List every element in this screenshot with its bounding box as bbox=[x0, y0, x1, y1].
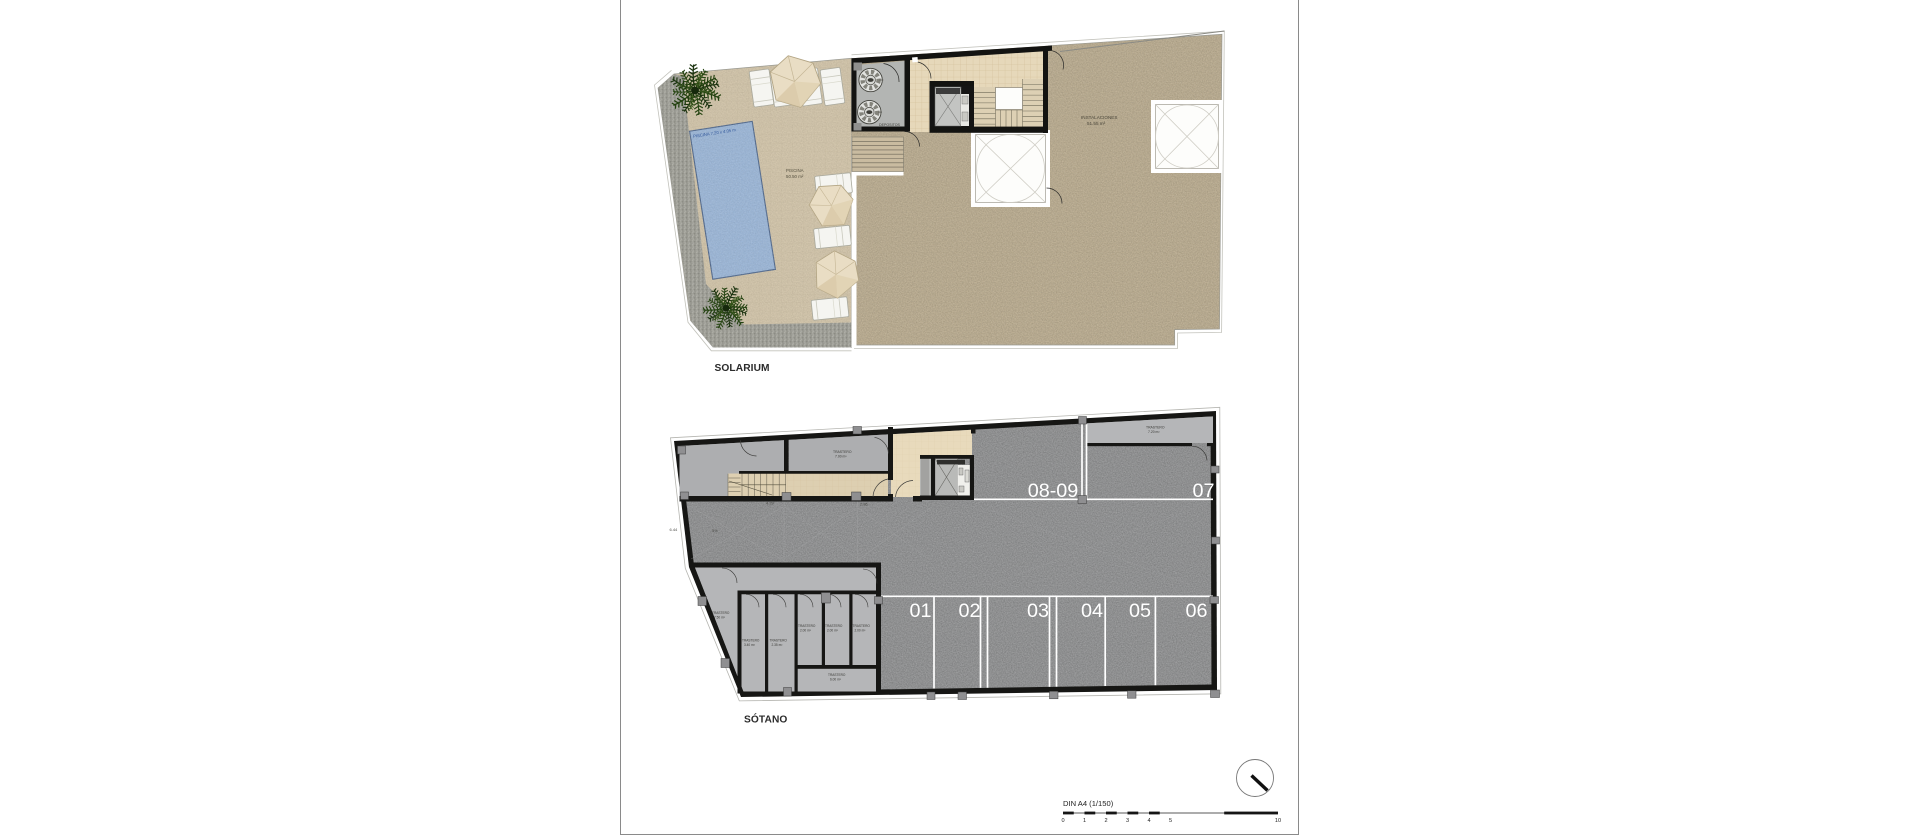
svg-text:TRASTERO: TRASTERO bbox=[833, 450, 852, 454]
svg-text:2.00 m²: 2.00 m² bbox=[827, 629, 838, 633]
svg-text:4.29: 4.29 bbox=[766, 501, 775, 506]
svg-text:2.00 m²: 2.00 m² bbox=[855, 629, 866, 633]
svg-text:05: 05 bbox=[1129, 600, 1151, 622]
svg-text:4: 4 bbox=[1147, 818, 1150, 824]
svg-text:TRASTERO: TRASTERO bbox=[770, 639, 788, 643]
svg-text:SÓTANO: SÓTANO bbox=[744, 713, 787, 726]
svg-text:2: 2 bbox=[1104, 818, 1107, 824]
svg-text:7.00 m²: 7.00 m² bbox=[835, 455, 847, 459]
svg-text:6.44: 6.44 bbox=[670, 527, 679, 532]
svg-text:TRASTERO: TRASTERO bbox=[853, 624, 871, 628]
svg-text:TRASTERO: TRASTERO bbox=[825, 624, 843, 628]
svg-text:2.00 m²: 2.00 m² bbox=[800, 629, 811, 633]
svg-text:PISCINA: PISCINA bbox=[786, 168, 804, 173]
svg-text:04: 04 bbox=[1081, 600, 1103, 622]
svg-text:TRASTERO: TRASTERO bbox=[712, 611, 730, 615]
svg-text:03: 03 bbox=[1027, 600, 1049, 622]
svg-text:1: 1 bbox=[1083, 818, 1086, 824]
svg-text:TRASTERO: TRASTERO bbox=[1146, 426, 1165, 430]
svg-text:INSTALACIONES: INSTALACIONES bbox=[1081, 115, 1117, 120]
svg-text:06: 06 bbox=[1185, 600, 1207, 622]
svg-text:3.40 m²: 3.40 m² bbox=[744, 643, 755, 647]
svg-text:2.35 m²: 2.35 m² bbox=[772, 643, 783, 647]
svg-text:SOLARIUM: SOLARIUM bbox=[715, 363, 770, 374]
svg-text:7.20 m²: 7.20 m² bbox=[1148, 430, 1160, 434]
svg-text:6.00 m²: 6.00 m² bbox=[830, 678, 841, 682]
svg-text:TRASTERO: TRASTERO bbox=[828, 673, 846, 677]
svg-text:51.55 m²: 51.55 m² bbox=[1087, 121, 1106, 126]
svg-text:07: 07 bbox=[1192, 480, 1214, 502]
svg-text:01: 01 bbox=[909, 600, 931, 622]
svg-text:0: 0 bbox=[1061, 818, 1064, 824]
svg-text:50.50 m²: 50.50 m² bbox=[786, 174, 804, 179]
svg-text:DIN A4 (1/150): DIN A4 (1/150) bbox=[1063, 799, 1114, 808]
svg-text:DEPOSITOS: DEPOSITOS bbox=[879, 123, 901, 127]
svg-text:10: 10 bbox=[1275, 818, 1281, 824]
svg-text:7.50 m²: 7.50 m² bbox=[714, 616, 725, 620]
svg-text:2.86: 2.86 bbox=[860, 502, 869, 507]
svg-text:3: 3 bbox=[1126, 818, 1129, 824]
svg-text:5: 5 bbox=[1169, 818, 1172, 824]
svg-text:08-09: 08-09 bbox=[1028, 480, 1079, 502]
svg-text:TRASTERO: TRASTERO bbox=[798, 624, 816, 628]
svg-text:5%: 5% bbox=[712, 528, 718, 533]
svg-text:TRASTERO: TRASTERO bbox=[742, 639, 760, 643]
svg-text:02: 02 bbox=[958, 600, 980, 622]
